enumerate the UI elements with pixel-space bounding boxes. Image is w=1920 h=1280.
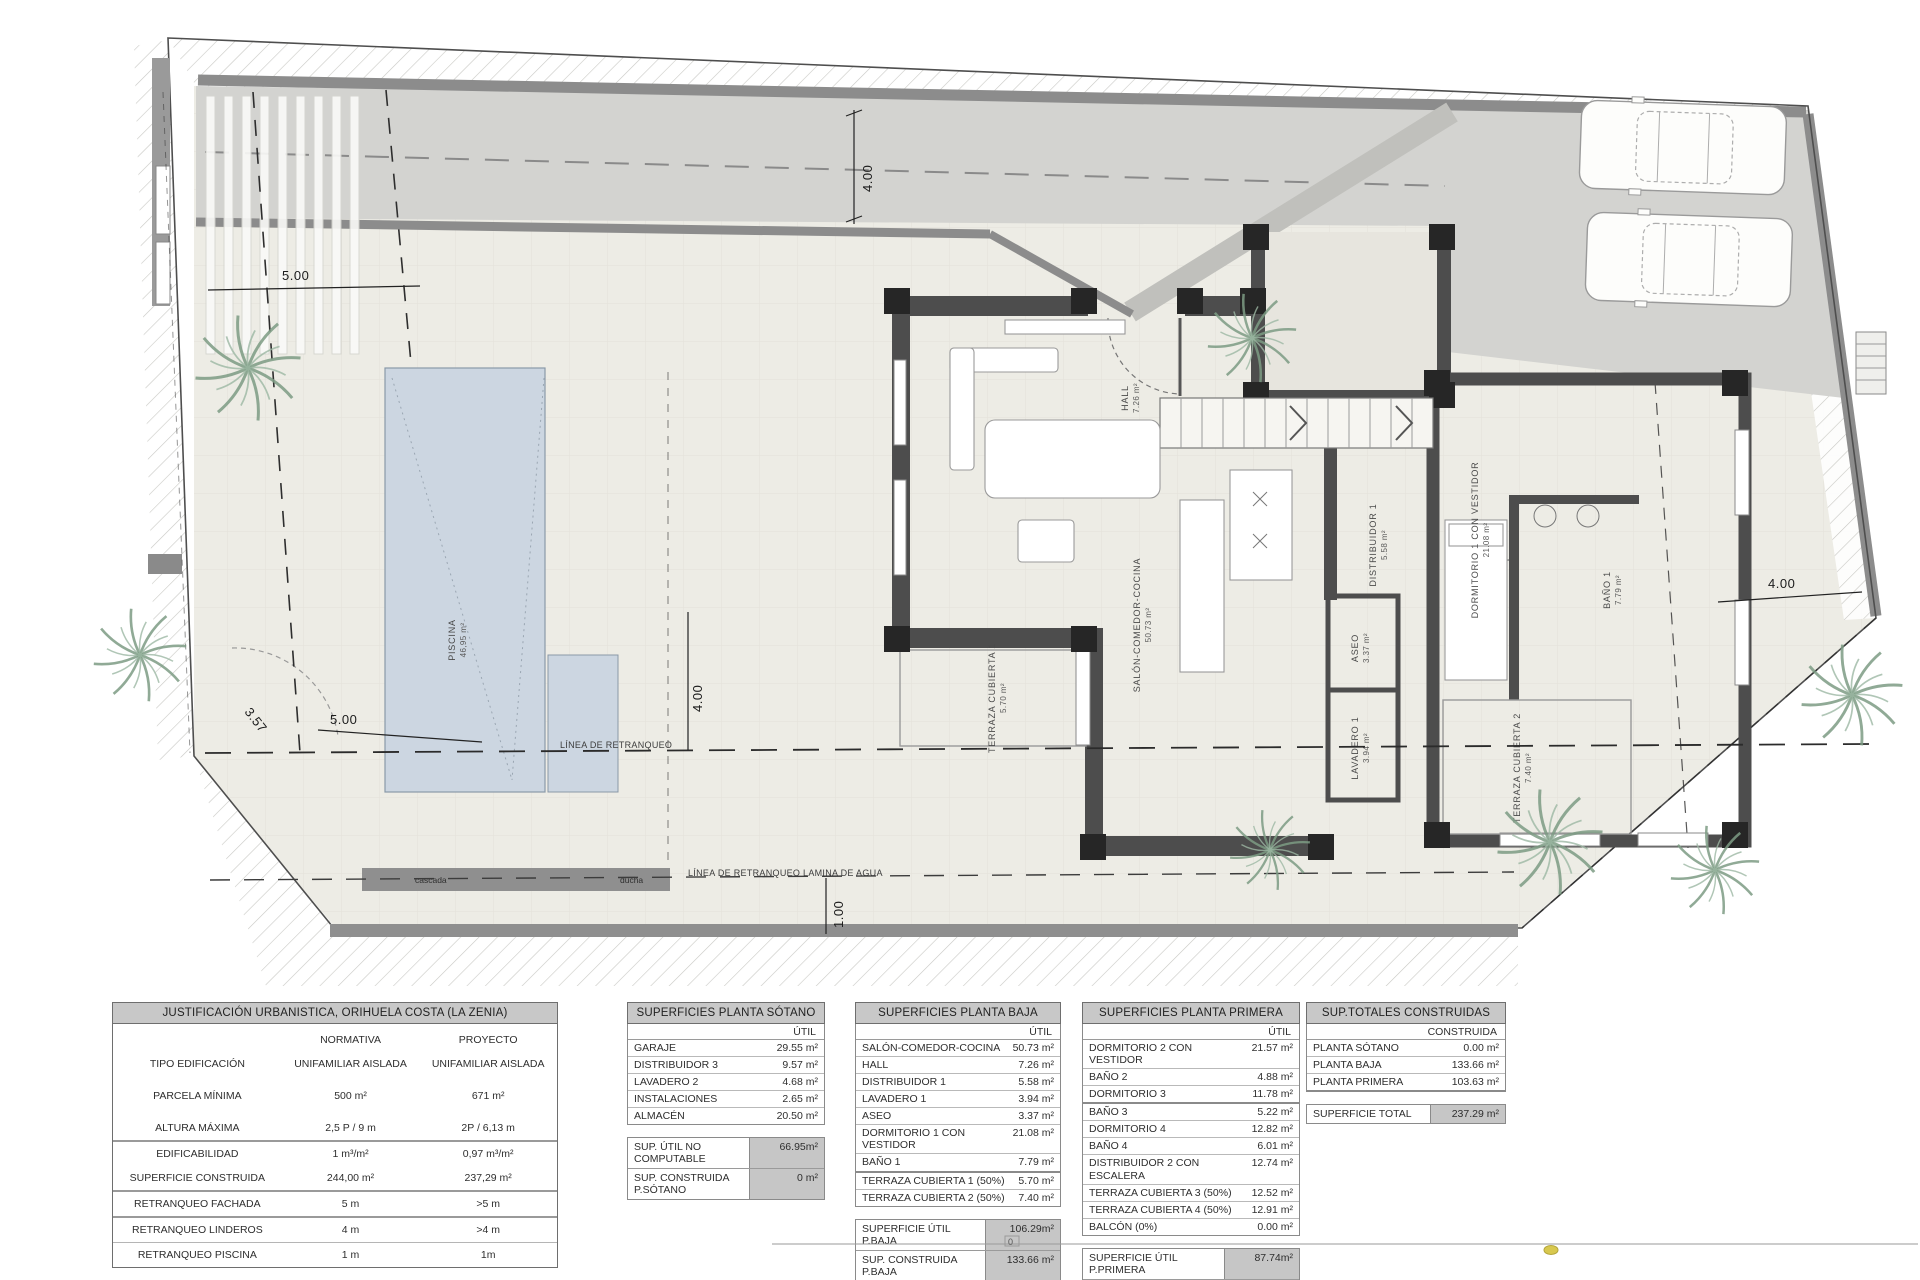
table-row: TIPO EDIFICACIÓN UNIFAMILIAR AISLADA UNI… [113,1052,557,1076]
table-row: BAÑO 24.88 m² [1083,1069,1299,1086]
table-row: EDIFICABILIDAD 1 m³/m² 0,97 m³/m² [113,1140,557,1166]
table-row: ALMACÉN20.50 m² [628,1108,824,1124]
svg-text:5.58 m²: 5.58 m² [1380,530,1389,560]
col-header: CONSTRUIDA [1428,1026,1497,1038]
dim-left-top: 5.00 [282,268,309,283]
table-row: BAÑO 46.01 m² [1083,1138,1299,1155]
dim-left-bottom: 5.00 [330,712,357,727]
table-title: SUPERFICIES PLANTA PRIMERA [1082,1002,1300,1024]
svg-text:7.26 m²: 7.26 m² [1132,383,1141,413]
dim-right: 4.00 [1768,576,1795,591]
table-row: PLANTA PRIMERA103.63 m² [1307,1074,1505,1091]
site-plan: PISCINA 46,95 m² cascada ducha [0,0,1920,1000]
table-row: LAVADERO 24.68 m² [628,1074,824,1091]
svg-text:DISTRIBUIDOR 1: DISTRIBUIDOR 1 [1368,503,1378,586]
svg-text:7.79 m²: 7.79 m² [1614,575,1623,605]
bottom-wall [330,924,1518,937]
table-row: ALTURA MÁXIMA 2,5 P / 9 m 2P / 6,13 m [113,1108,557,1140]
col-header: ÚTIL [1268,1026,1291,1038]
table-row: LAVADERO 13.94 m² [856,1091,1060,1108]
table-title: SUPERFICIES PLANTA BAJA [855,1002,1061,1024]
table-row: DISTRIBUIDOR 39.57 m² [628,1057,824,1074]
summary-row: SUP. ÚTIL NO COMPUTABLE66.95m² [628,1138,824,1169]
svg-text:LAVADERO 1: LAVADERO 1 [1350,716,1360,779]
table-row: DISTRIBUIDOR 15.58 m² [856,1074,1060,1091]
kitchen-counter [1230,470,1292,580]
table-row: DORMITORIO 412.82 m² [1083,1121,1299,1138]
summary-row: SUPERFICIE TOTAL237.29 m² [1307,1105,1505,1123]
stairs [1160,398,1433,448]
table-row: PARCELA MÍNIMA 500 m² 671 m² [113,1076,557,1108]
table-row: RETRANQUEO FACHADA 5 m >5 m [113,1190,557,1216]
dim-mid: 4.00 [690,685,705,712]
svg-text:50.73 m²: 50.73 m² [1144,608,1153,643]
exterior-stair [1856,332,1886,394]
svg-text:3.37 m²: 3.37 m² [1362,633,1371,663]
svg-text:TERRAZA CUBIERTA 2: TERRAZA CUBIERTA 2 [1512,713,1522,823]
table-row: PLANTA BAJA133.66 m² [1307,1057,1505,1074]
table-row: SALÓN-COMEDOR-COCINA50.73 m² [856,1040,1060,1057]
dim-top: 4.00 [860,165,875,192]
scale-line: 0 [0,1228,1920,1268]
table-row: TERRAZA CUBIERTA 1 (50%)5.70 m² [856,1173,1060,1190]
svg-text:5.70 m²: 5.70 m² [999,683,1008,713]
table-totales: SUP.TOTALES CONSTRUIDAS CONSTRUIDA PLANT… [1306,1002,1506,1124]
retranqueo-agua-label: LÍNEA DE RETRANQUEO LAMINA DE AGUA [688,868,883,878]
svg-text:PISCINA: PISCINA [447,619,457,661]
table-row: HALL7.26 m² [856,1057,1060,1074]
dining-table [985,420,1160,498]
svg-text:SALÓN-COMEDOR-COCINA: SALÓN-COMEDOR-COCINA [1132,558,1142,693]
pergola-slats [206,96,359,354]
svg-text:7.40 m²: 7.40 m² [1524,753,1533,783]
svg-text:DORMITORIO 1 CON VESTIDOR: DORMITORIO 1 CON VESTIDOR [1470,462,1480,619]
table-row: TERRAZA CUBIERTA 4 (50%)12.91 m² [1083,1202,1299,1219]
svg-text:3.94 m²: 3.94 m² [1362,733,1371,763]
table-row: BAÑO 35.22 m² [1083,1104,1299,1121]
table-planta-sotano: SUPERFICIES PLANTA SÓTANO ÚTIL GARAJE29.… [627,1002,825,1200]
table-row: SUPERFICIE CONSTRUIDA 244,00 m² 237,29 m… [113,1166,557,1190]
kitchen-island [1180,500,1224,672]
table-title: JUSTIFICACIÓN URBANISTICA, ORIHUELA COST… [112,1002,558,1024]
table-title: SUPERFICIES PLANTA SÓTANO [627,1002,825,1024]
header-normativa: NORMATIVA [282,1028,420,1052]
col-header: ÚTIL [793,1026,816,1038]
table-row: BAÑO 17.79 m² [856,1154,1060,1172]
ducha-label: ducha [620,875,643,885]
svg-text:HALL: HALL [1120,385,1130,411]
svg-text:46,95 m²: 46,95 m² [459,623,468,658]
summary-row: SUP. CONSTRUIDA P.SÓTANO0 m² [628,1169,824,1199]
summary-box: SUPERFICIE TOTAL237.29 m² [1306,1104,1506,1124]
svg-text:BAÑO 1: BAÑO 1 [1602,571,1612,609]
dim-water: 1.00 [831,901,846,928]
scale-zero-label: 0 [1008,1237,1013,1247]
table-row: INSTALACIONES2.65 m² [628,1091,824,1108]
scale-marker-dot [1544,1246,1558,1255]
patio [1255,232,1445,400]
table-row: DORMITORIO 2 CON VESTIDOR21.57 m² [1083,1040,1299,1069]
header-blank [113,1034,282,1046]
svg-text:21.08 m²: 21.08 m² [1482,523,1491,558]
table-row: ASEO3.37 m² [856,1108,1060,1125]
col-header: ÚTIL [1029,1026,1052,1038]
table-row: DISTRIBUIDOR 2 CON ESCALERA12.74 m² [1083,1155,1299,1184]
table-row: TERRAZA CUBIERTA 3 (50%)12.52 m² [1083,1185,1299,1202]
pool-edge-bar: cascada ducha [362,868,670,891]
table-row: DORMITORIO 1 CON VESTIDOR21.08 m² [856,1125,1060,1154]
table-title: SUP.TOTALES CONSTRUIDAS [1306,1002,1506,1024]
table-row: GARAJE29.55 m² [628,1040,824,1057]
floor-plan-sheet: { "plan": { "rooms": [ {"name": "HALL", … [0,0,1920,1280]
table-row: DORMITORIO 311.78 m² [1083,1086,1299,1104]
table-row: TERRAZA CUBIERTA 2 (50%)7.40 m² [856,1190,1060,1206]
summary-box: SUP. ÚTIL NO COMPUTABLE66.95m² SUP. CONS… [627,1137,825,1200]
header-proyecto: PROYECTO [419,1028,557,1052]
retranqueo-label: LÍNEA DE RETRANQUEO [560,740,672,750]
svg-text:ASEO: ASEO [1350,634,1360,662]
table-row: PLANTA SÓTANO0.00 m² [1307,1040,1505,1057]
cascada-label: cascada [415,875,447,885]
svg-text:TERRAZA CUBIERTA 1: TERRAZA CUBIERTA 1 [987,643,997,753]
